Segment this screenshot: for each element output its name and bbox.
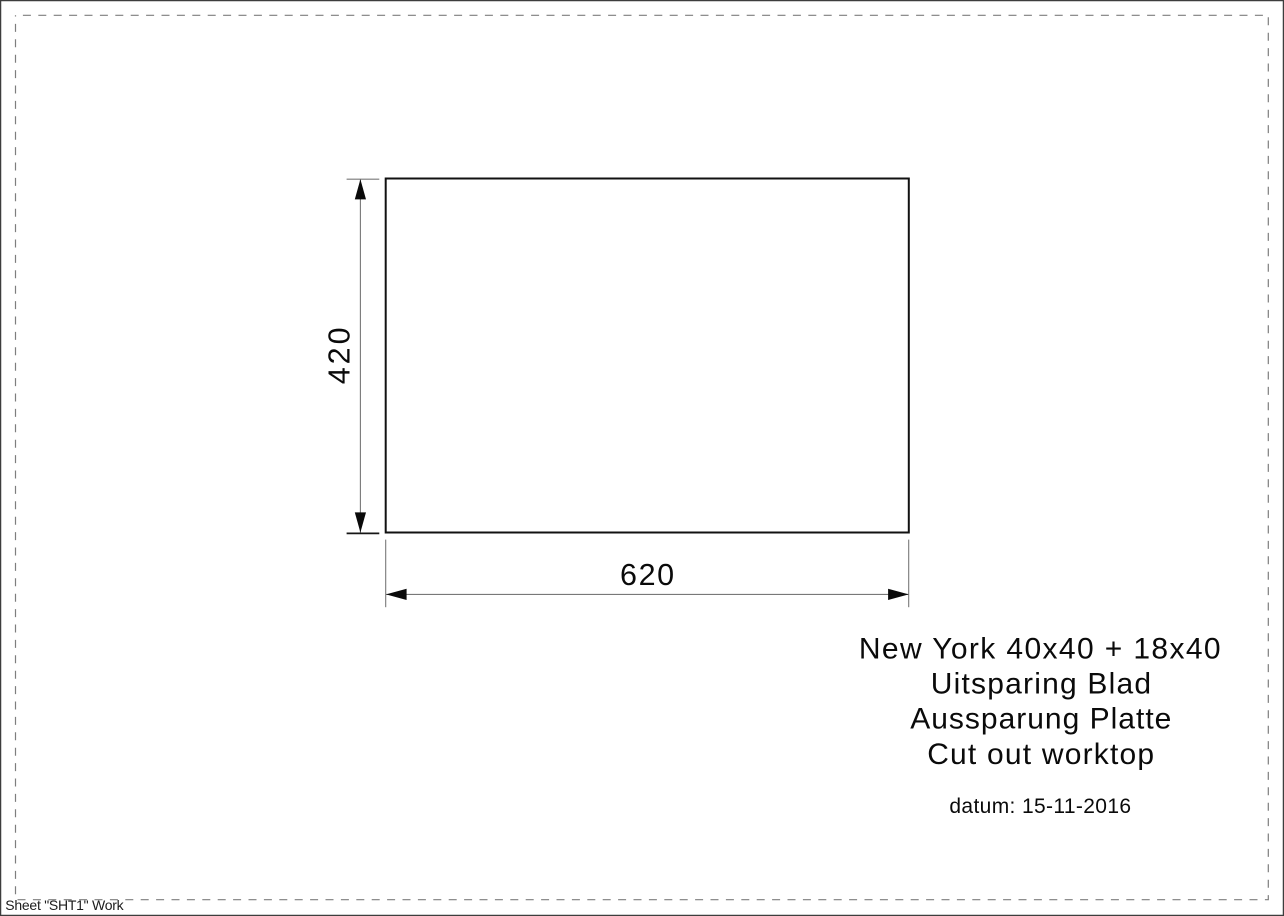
svg-text:420: 420 <box>322 324 356 384</box>
svg-text:Sheet "SHT1" Work: Sheet "SHT1" Work <box>5 897 124 913</box>
svg-text:datum: 15-11-2016: datum: 15-11-2016 <box>949 795 1131 818</box>
svg-text:Aussparung Platte: Aussparung Platte <box>910 702 1172 735</box>
svg-text:Cut out worktop: Cut out worktop <box>927 738 1155 771</box>
svg-text:Uitsparing Blad: Uitsparing Blad <box>931 667 1152 700</box>
svg-text:New York 40x40 + 18x40: New York 40x40 + 18x40 <box>859 633 1222 666</box>
svg-text:620: 620 <box>620 558 676 592</box>
